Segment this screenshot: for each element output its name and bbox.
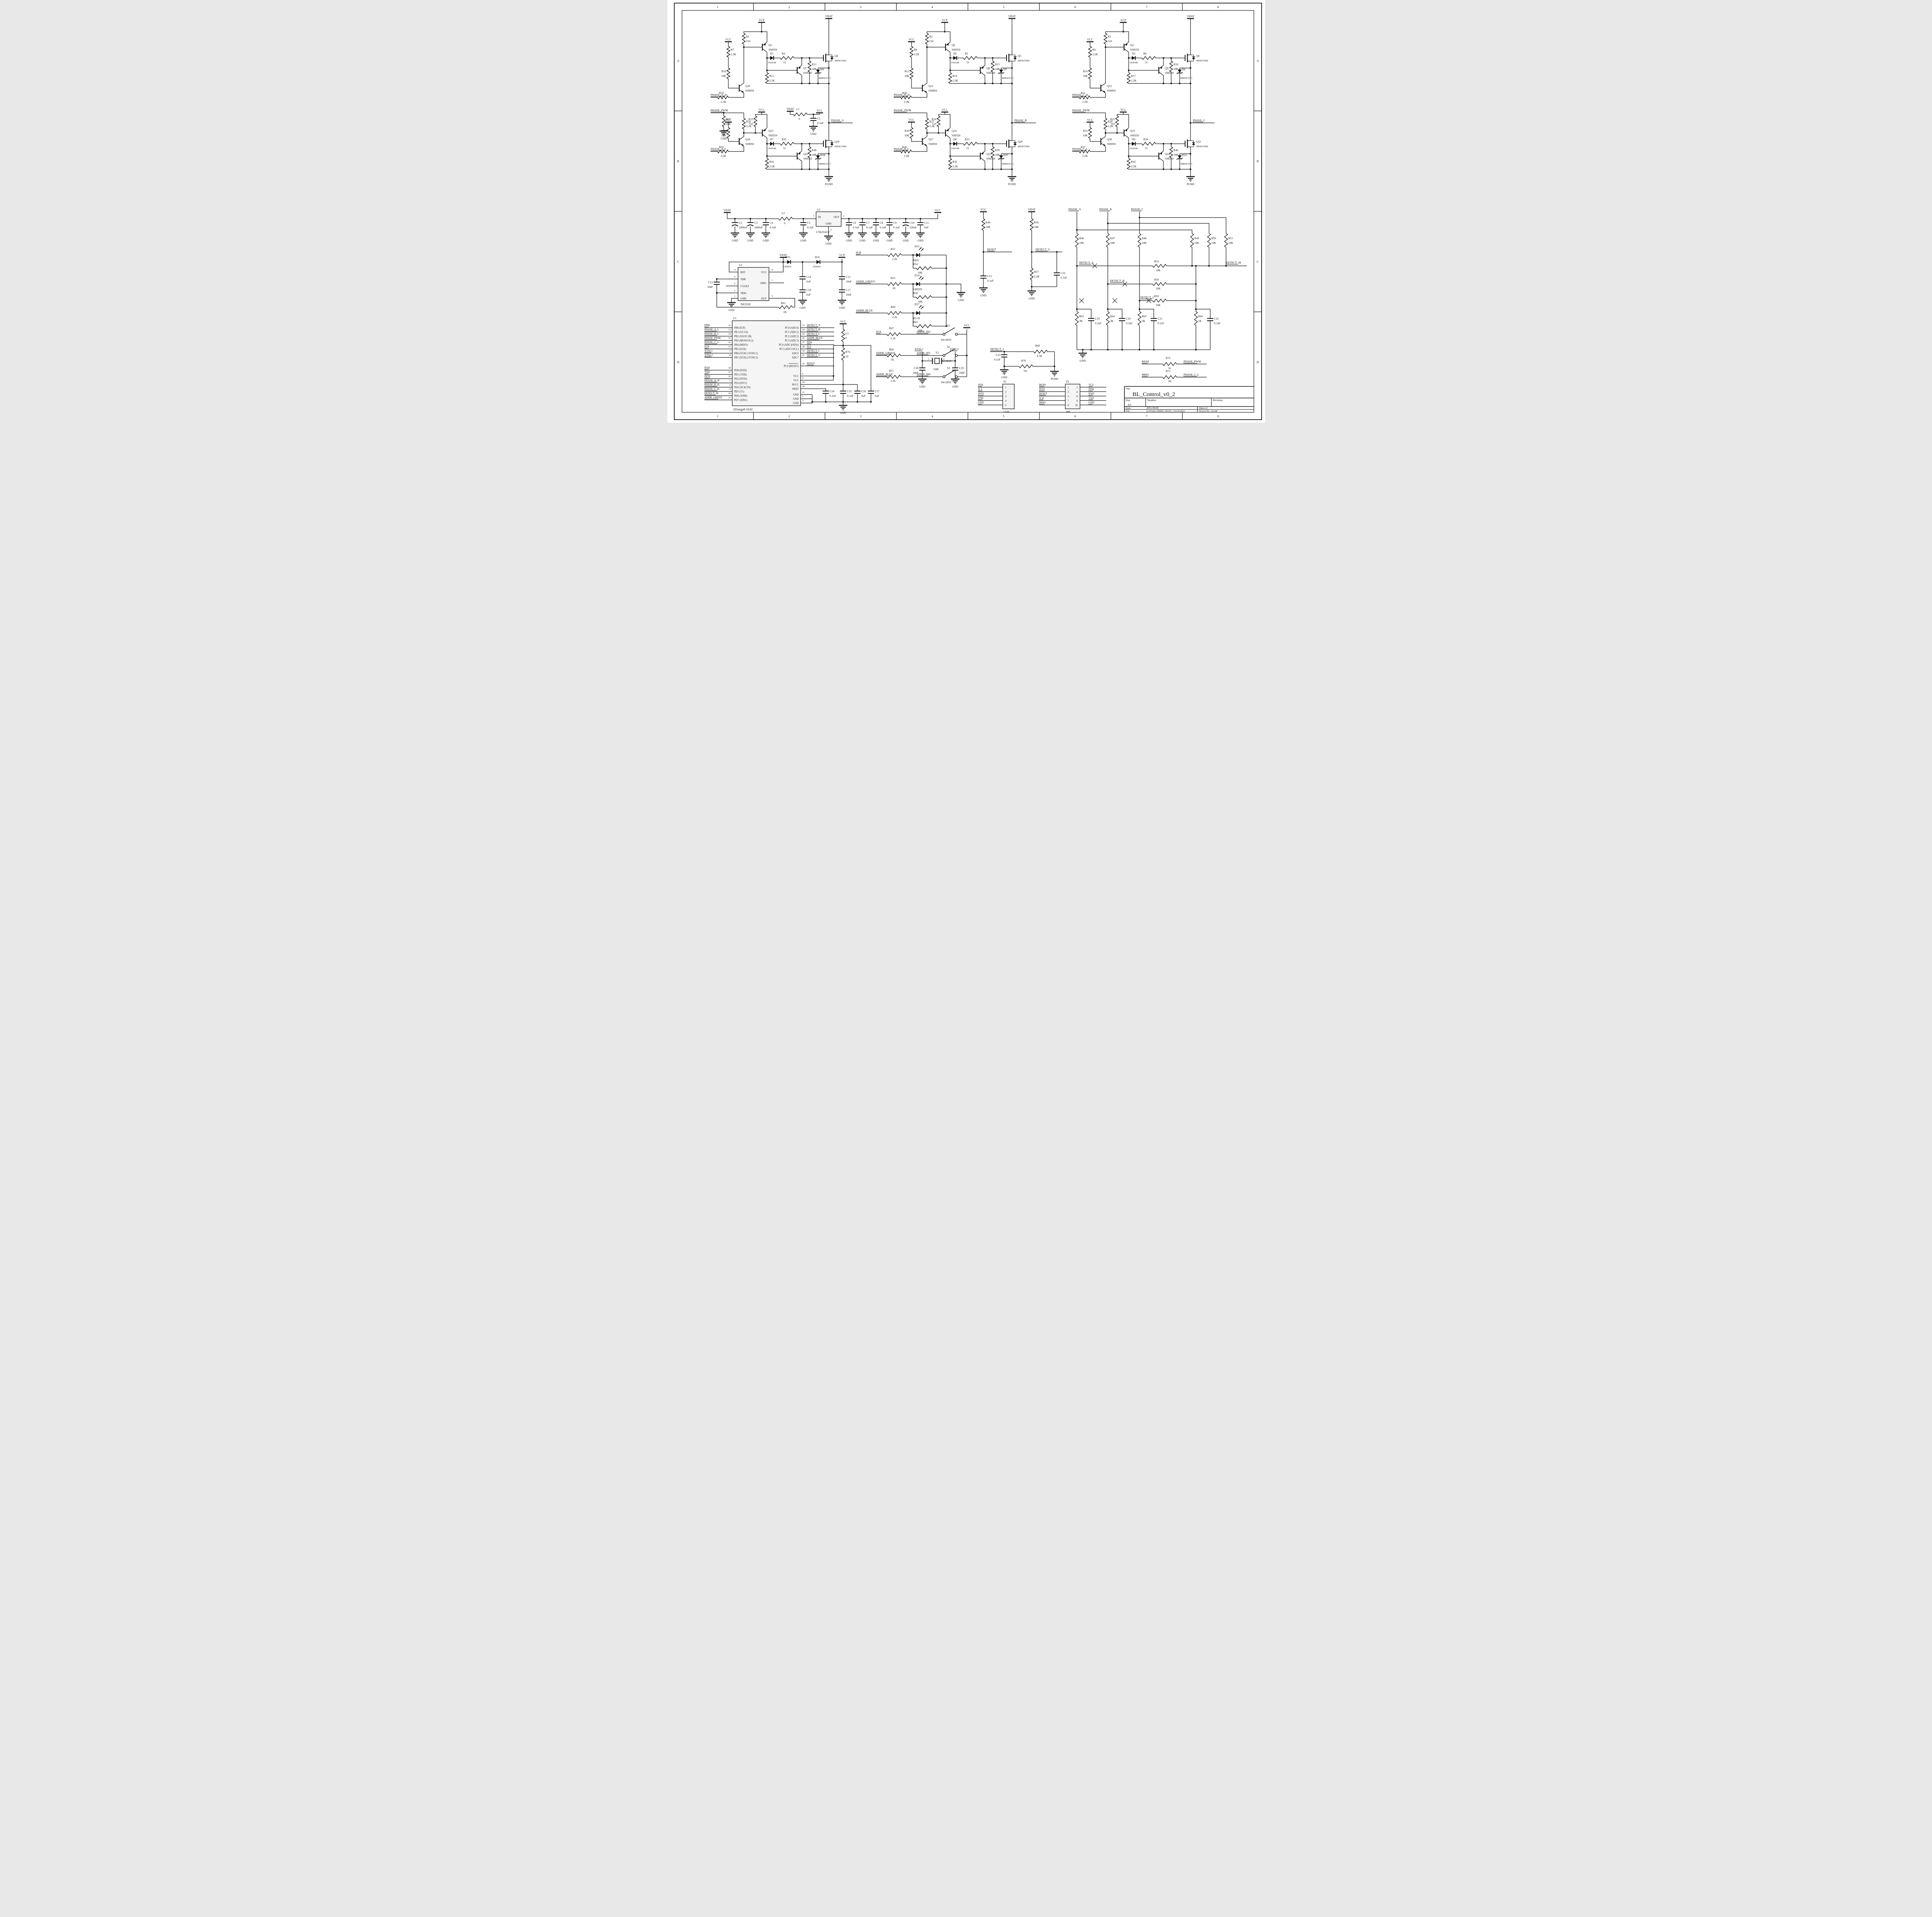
svg-text:Q8: Q8 — [986, 67, 990, 70]
svg-text:2.2K: 2.2K — [721, 100, 726, 104]
svg-text:25: 25 — [802, 333, 804, 335]
svg-text:VCP: VCP — [942, 19, 947, 22]
svg-text:VCP: VCP — [1120, 19, 1126, 22]
svg-text:2.2K: 2.2K — [731, 53, 736, 56]
svg-text:XTAL1: XTAL1 — [704, 350, 713, 352]
svg-text:L1: L1 — [796, 108, 799, 111]
svg-text:R55: R55 — [891, 277, 895, 280]
svg-text:SDA: SDA — [807, 341, 812, 344]
svg-text:SS8550: SS8550 — [1130, 48, 1139, 51]
svg-text:R7: R7 — [731, 48, 734, 51]
svg-text:A: A — [1257, 59, 1259, 63]
svg-text:2: 2 — [729, 384, 730, 386]
svg-text:VCC: VCC — [964, 324, 969, 327]
svg-text:0.1uF: 0.1uF — [1158, 322, 1164, 325]
svg-text:PB7 (XTAL2/TOSC2): PB7 (XTAL2/TOSC2) — [734, 357, 758, 359]
svg-text:CON: CON — [1003, 410, 1010, 413]
svg-text:18K: 18K — [812, 153, 817, 156]
svg-text:SCK: SCK — [704, 345, 709, 348]
svg-text:VBAT: VBAT — [1187, 15, 1194, 18]
svg-text:1: 1 — [843, 215, 844, 218]
svg-text:GREEN: GREEN — [913, 288, 922, 291]
svg-text:18K: 18K — [995, 153, 1000, 156]
svg-text:R17: R17 — [1131, 75, 1136, 78]
svg-text:C11: C11 — [924, 221, 929, 225]
svg-text:R16: R16 — [1083, 70, 1088, 73]
svg-text:GND: GND — [732, 239, 738, 242]
svg-text:1: 1 — [1068, 386, 1069, 389]
svg-text:R45: R45 — [1034, 221, 1039, 224]
svg-text:C2: C2 — [739, 221, 742, 225]
svg-text:C27: C27 — [875, 390, 879, 393]
svg-text:GND: GND — [747, 239, 753, 242]
svg-text:5m: 5m — [1024, 369, 1027, 373]
svg-text:SW-SPST: SW-SPST — [941, 360, 952, 363]
svg-text:C9: C9 — [893, 221, 897, 225]
svg-text:2.2K: 2.2K — [1092, 53, 1098, 56]
svg-text:VCC: VCC — [908, 118, 914, 122]
svg-text:DETECT_I: DETECT_I — [807, 350, 820, 352]
svg-text:VCP: VCP — [839, 253, 844, 257]
svg-text:GND: GND — [840, 412, 846, 415]
svg-text:D16: D16 — [815, 256, 820, 259]
svg-text:R54: R54 — [913, 263, 918, 266]
svg-text:7: 7 — [1146, 415, 1147, 418]
svg-text:510: 510 — [929, 40, 934, 43]
svg-text:2.2K: 2.2K — [952, 79, 958, 82]
svg-text:ADC7: ADC7 — [792, 357, 799, 359]
svg-text:GND: GND — [846, 239, 852, 242]
svg-text:1000uF: 1000uF — [739, 226, 747, 229]
title-block: TitleBL_Control_v0_2SizeNumberRevisionA3… — [1124, 386, 1254, 413]
svg-text:8: 8 — [1217, 415, 1219, 418]
svg-text:SS8050: SS8050 — [929, 89, 937, 92]
svg-text:6uF: 6uF — [806, 280, 811, 283]
svg-text:2.2K: 2.2K — [1131, 79, 1137, 82]
svg-text:DETECT_C: DETECT_C — [807, 333, 820, 335]
svg-text:R42: R42 — [952, 160, 957, 163]
svg-text:10uF: 10uF — [846, 280, 852, 283]
svg-text:GND: GND — [980, 294, 986, 297]
svg-text:DETECT_B: DETECT_B — [807, 328, 820, 331]
svg-text:2.2k: 2.2k — [891, 337, 896, 340]
svg-text:27: 27 — [802, 341, 804, 344]
svg-text:PGND: PGND — [825, 183, 833, 186]
svg-text:C3: C3 — [754, 221, 758, 225]
svg-text:16M: 16M — [933, 368, 939, 371]
svg-text:GND: GND — [886, 239, 893, 242]
svg-text:2: 2 — [1005, 391, 1007, 394]
svg-text:B: B — [1257, 160, 1259, 163]
svg-text:0.1uF: 0.1uF — [1126, 322, 1133, 325]
svg-text:4: 4 — [1005, 400, 1007, 403]
svg-text:SS8550: SS8550 — [986, 157, 995, 160]
svg-text:GND: GND — [825, 242, 832, 245]
svg-text:Q9: Q9 — [1165, 67, 1168, 70]
svg-text:D8: D8 — [953, 138, 957, 141]
svg-text:DETECT_A: DETECT_A — [807, 324, 820, 327]
svg-text:ADC6: ADC6 — [792, 352, 799, 355]
svg-text:ADDR_GREEN: ADDR_GREEN — [704, 396, 722, 399]
svg-text:ADDR_ID1: ADDR_ID1 — [917, 351, 930, 355]
svg-text:SS8550: SS8550 — [986, 71, 995, 75]
svg-text:Q13: Q13 — [769, 129, 774, 133]
svg-text:R64: R64 — [1110, 315, 1115, 318]
svg-text:SS8050: SS8050 — [745, 89, 754, 92]
svg-text:R3: R3 — [1108, 35, 1111, 38]
svg-text:GND: GND — [1029, 297, 1035, 300]
svg-text:PHASE_A: PHASE_A — [831, 119, 844, 122]
svg-text:PHASE_PWM: PHASE_PWM — [711, 109, 728, 112]
svg-text:R71: R71 — [889, 369, 894, 373]
svg-text:10K: 10K — [721, 134, 726, 137]
bridge-bottom-A: PHASE_PWMR2218KGNDR262.2KVCLR23510Q13SS8… — [711, 93, 853, 186]
svg-text:R39: R39 — [995, 149, 1000, 152]
svg-text:OUT: OUT — [833, 216, 839, 219]
svg-text:12: 12 — [728, 324, 730, 327]
svg-text:R44: R44 — [986, 221, 990, 224]
svg-text:7: 7 — [1068, 400, 1069, 403]
svg-text:IRFR3709Z: IRFR3709Z — [835, 145, 847, 148]
svg-text:VCL: VCL — [1120, 108, 1126, 112]
svg-text:R59: R59 — [1154, 295, 1159, 298]
svg-text:10K: 10K — [1083, 134, 1088, 137]
svg-text:D: D — [677, 361, 679, 364]
svg-text:510: 510 — [1108, 40, 1112, 43]
svg-text:VCL: VCL — [816, 109, 822, 112]
svg-text:PC0 (ADC0): PC0 (ADC0) — [785, 327, 799, 330]
svg-text:0.1uF: 0.1uF — [807, 226, 814, 229]
svg-text:R53: R53 — [1154, 260, 1159, 263]
svg-text:4: 4 — [1076, 391, 1078, 394]
connector-p2: P2ISPMOSI1INT03RESET5SCK7MISO92VCC4PPM6R… — [1039, 380, 1106, 413]
bridge-top-C: VCPR3510Q3SS8550D31N4148R651Q9SS8550R172… — [1072, 15, 1208, 104]
svg-text:R65: R65 — [1142, 315, 1146, 318]
svg-text:2.2K: 2.2K — [769, 79, 775, 82]
svg-text:D2: D2 — [953, 52, 957, 55]
svg-text:C5: C5 — [807, 221, 811, 225]
svg-text:Q20: Q20 — [1018, 140, 1023, 143]
svg-text:1000uF: 1000uF — [754, 226, 763, 229]
svg-text:D14: D14 — [915, 274, 920, 277]
svg-text:RST: RST — [740, 271, 746, 274]
svg-text:C23: C23 — [996, 354, 1000, 357]
svg-text:VCC: VCC — [761, 271, 767, 274]
svg-text:0.1uF: 0.1uF — [1095, 322, 1102, 325]
svg-text:R9: R9 — [1092, 48, 1096, 51]
svg-text:PD7 (AIN1): PD7 (AIN1) — [734, 399, 747, 402]
svg-text:2.2K: 2.2K — [952, 165, 958, 168]
svg-text:C16: C16 — [1061, 272, 1065, 275]
svg-text:S3: S3 — [947, 367, 950, 370]
svg-text:ADDR_ID2: ADDR_ID2 — [917, 330, 930, 333]
svg-text:3: 3 — [813, 215, 814, 218]
svg-text:TRIG: TRIG — [740, 292, 747, 295]
svg-text:0.1uF: 0.1uF — [994, 358, 1000, 361]
svg-text:D17: D17 — [915, 303, 920, 306]
svg-text:PHASE_C: PHASE_C — [1193, 119, 1205, 122]
svg-text:PHASE_C_H: PHASE_C_H — [704, 388, 719, 391]
svg-text:PHASE_B_H: PHASE_B_H — [894, 93, 910, 97]
schematic-page: 1122334455667788AABBCCDDTitleBL_Control_… — [667, 0, 1265, 423]
svg-text:23: 23 — [802, 324, 804, 327]
svg-text:C10: C10 — [910, 221, 914, 225]
svg-text:16: 16 — [728, 341, 730, 344]
svg-text:4: 4 — [802, 377, 804, 379]
svg-text:1N4148: 1N4148 — [1129, 61, 1138, 64]
svg-text:GND: GND — [1088, 401, 1094, 404]
svg-text:10K: 10K — [1142, 242, 1147, 245]
svg-text:RXD: RXD — [1088, 393, 1094, 395]
svg-text:GND: GND — [810, 133, 816, 136]
svg-text:NE555D: NE555D — [741, 303, 751, 306]
svg-text:CVOLT: CVOLT — [740, 285, 749, 288]
svg-text:510: 510 — [749, 122, 753, 126]
svg-text:U3: U3 — [817, 208, 820, 211]
svg-text:PB1 (OC1A): PB1 (OC1A) — [734, 331, 748, 334]
svg-text:R56: R56 — [1154, 278, 1159, 281]
connector-p1: P1CONSDA1SCL2INT03PPM4GND5 — [978, 380, 1014, 413]
svg-text:R5: R5 — [965, 52, 968, 55]
svg-text:PB5 (SCK): PB5 (SCK) — [734, 348, 746, 351]
svg-text:Q11: Q11 — [929, 85, 934, 88]
svg-text:PPM: PPM — [978, 397, 983, 400]
svg-text:3: 3 — [860, 415, 861, 418]
svg-text:DETECT_I: DETECT_I — [990, 347, 1004, 351]
svg-text:R68: R68 — [1035, 344, 1040, 347]
svg-text:14: 14 — [728, 333, 731, 335]
svg-text:A: A — [677, 59, 679, 63]
svg-text:C25: C25 — [847, 390, 852, 393]
svg-text:XTAL1: XTAL1 — [915, 347, 923, 351]
svg-text:Sheet of: Sheet of — [1199, 407, 1208, 410]
svg-text:1: 1 — [717, 415, 718, 418]
svg-text:R50: R50 — [1211, 237, 1216, 240]
svg-text:R18: R18 — [1173, 63, 1178, 66]
svg-text:18K: 18K — [812, 68, 817, 71]
svg-text:10: 10 — [845, 355, 849, 358]
svg-text:8: 8 — [1076, 400, 1078, 403]
bridge-bottom-B: PHASE_PWMR272.2KVCLR24510Q14SS8550D81N41… — [894, 93, 1036, 186]
svg-text:VCC: VCC — [980, 208, 986, 211]
svg-text:GND: GND — [1001, 376, 1007, 379]
svg-text:SS8050: SS8050 — [745, 143, 754, 146]
svg-text:R60: R60 — [891, 306, 895, 309]
svg-text:3: 3 — [772, 295, 773, 298]
svg-text:1: 1 — [1005, 386, 1006, 389]
svg-text:2.2K: 2.2K — [1034, 275, 1040, 278]
svg-text:Q10: Q10 — [745, 85, 750, 88]
bridge-top-B: VCPR2510Q2SS8550D21N4148R551Q8SS8550R142… — [894, 15, 1030, 104]
svg-text:24: 24 — [802, 328, 805, 331]
svg-text:1K: 1K — [891, 358, 895, 361]
svg-text:GND: GND — [799, 306, 806, 310]
svg-text:1K: 1K — [783, 311, 787, 314]
svg-text:2: 2 — [788, 5, 790, 9]
svg-text:PD5 (T1): PD5 (T1) — [734, 391, 744, 393]
svg-text:6: 6 — [1076, 395, 1078, 398]
svg-text:PHASE_B_L: PHASE_B_L — [704, 333, 719, 335]
svg-text:GND: GND — [978, 401, 984, 404]
svg-text:SDA: SDA — [978, 384, 983, 386]
svg-text:0.1uF: 0.1uF — [1214, 322, 1221, 325]
svg-text:Drawn By: racede: Drawn By: racede — [1199, 410, 1218, 413]
svg-text:C14: C14 — [806, 276, 811, 279]
svg-text:SCL: SCL — [807, 345, 812, 348]
svg-text:PC6 (RESET): PC6 (RESET) — [784, 365, 799, 368]
svg-text:6uF: 6uF — [875, 395, 879, 398]
svg-text:GND: GND — [793, 398, 799, 401]
reset-rc: VCCR4418KRESETC150.1uFGND — [979, 208, 1012, 298]
svg-text:10K: 10K — [1228, 242, 1233, 245]
svg-text:C12: C12 — [846, 276, 850, 279]
svg-text:10pF: 10pF — [959, 371, 965, 374]
svg-text:2.2K: 2.2K — [1082, 100, 1088, 104]
svg-text:18K: 18K — [986, 226, 991, 229]
svg-text:IRFR3709Z: IRFR3709Z — [1018, 60, 1030, 62]
svg-text:R46: R46 — [1079, 237, 1084, 240]
svg-text:DETECT_C: DETECT_C — [1140, 296, 1155, 299]
svg-text:PHASE_A: PHASE_A — [1068, 208, 1081, 211]
svg-text:PC2 (ADC2): PC2 (ADC2) — [785, 335, 799, 338]
svg-text:C17: C17 — [846, 289, 850, 292]
svg-text:TXD: TXD — [704, 371, 710, 374]
svg-text:GND: GND — [859, 239, 866, 242]
svg-text:1: 1 — [717, 5, 718, 9]
svg-text:13: 13 — [728, 328, 730, 331]
svg-text:GND: GND — [903, 239, 909, 242]
svg-text:R43: R43 — [1131, 160, 1136, 163]
svg-text:MISO: MISO — [1142, 373, 1149, 376]
svg-text:C18: C18 — [806, 289, 811, 292]
svg-text:Q:\Project IMRH\.\BLDC_Ctrl.Sc: Q:\Project IMRH\.\BLDC_Ctrl.SchDoc — [1146, 410, 1185, 413]
svg-text:30: 30 — [728, 367, 730, 369]
svg-text:D9: D9 — [1132, 138, 1135, 141]
svg-text:17: 17 — [728, 345, 730, 348]
svg-text:D1: D1 — [770, 52, 774, 55]
svg-text:GND: GND — [952, 385, 958, 388]
svg-text:PB2 (SS/OC1B): PB2 (SS/OC1B) — [734, 335, 752, 338]
svg-text:ATmega8-16AC: ATmega8-16AC — [733, 408, 753, 411]
svg-text:R24: R24 — [932, 118, 936, 121]
svg-text:R30: R30 — [905, 129, 909, 133]
svg-text:PC5 (ADC5/SCL): PC5 (ADC5/SCL) — [779, 348, 798, 351]
svg-text:PHASE_C_L: PHASE_C_L — [1072, 147, 1088, 151]
svg-text:D3: D3 — [1132, 52, 1135, 55]
svg-text:R70: R70 — [1021, 359, 1026, 362]
svg-text:19: 19 — [802, 350, 804, 352]
svg-text:VCC: VCC — [1087, 38, 1093, 41]
svg-text:INT0: INT0 — [1039, 388, 1045, 391]
svg-text:6: 6 — [1074, 415, 1076, 418]
svg-text:51: 51 — [783, 147, 786, 150]
svg-text:SW-SPST: SW-SPST — [941, 381, 952, 384]
svg-text:IRFR3709Z: IRFR3709Z — [1196, 145, 1208, 148]
svg-text:10K: 10K — [1156, 287, 1161, 290]
svg-text:P1: P1 — [1003, 380, 1007, 383]
svg-text:C8: C8 — [880, 221, 883, 225]
svg-text:GND: GND — [728, 309, 735, 312]
svg-text:10pF: 10pF — [913, 371, 918, 374]
svg-text:6: 6 — [802, 373, 803, 375]
svg-text:PB6 (XTAL1/TOSC1): PB6 (XTAL1/TOSC1) — [734, 352, 758, 355]
svg-text:5: 5 — [1003, 5, 1004, 9]
svg-text:C26: C26 — [861, 390, 866, 393]
svg-text:2.2K: 2.2K — [1131, 165, 1137, 168]
svg-text:PHASE_C_H: PHASE_C_H — [1072, 93, 1088, 97]
svg-text:0: 0 — [799, 117, 800, 121]
svg-text:1k: 1k — [1168, 367, 1171, 370]
svg-text:R33: R33 — [965, 138, 969, 141]
svg-text:C15: C15 — [987, 275, 992, 278]
svg-text:2: 2 — [1076, 386, 1078, 389]
svg-text:VCL: VCL — [759, 108, 764, 112]
svg-text:P2: P2 — [1066, 380, 1069, 383]
svg-text:1K: 1K — [1168, 380, 1172, 383]
svg-text:THR: THR — [740, 278, 746, 281]
svg-text:MOSI: MOSI — [1142, 360, 1149, 363]
svg-text:GND: GND — [763, 239, 769, 242]
svg-text:0.1uF: 0.1uF — [880, 226, 886, 229]
svg-text:7: 7 — [772, 279, 773, 282]
svg-text:R29: R29 — [721, 129, 726, 133]
svg-text:7: 7 — [729, 350, 730, 352]
svg-text:C29: C29 — [959, 367, 964, 370]
svg-text:6uF: 6uF — [924, 226, 929, 229]
svg-text:R67: R67 — [889, 327, 894, 330]
svg-text:D12: D12 — [1182, 154, 1187, 157]
svg-text:R2: R2 — [929, 35, 933, 38]
svg-text:Revision: Revision — [1213, 399, 1223, 402]
svg-text:IN: IN — [818, 216, 821, 219]
svg-text:6: 6 — [1074, 5, 1076, 9]
svg-text:D11: D11 — [1003, 154, 1009, 157]
svg-text:GND: GND — [919, 385, 925, 388]
svg-text:0.1uF: 0.1uF — [770, 226, 776, 229]
svg-text:SCK: SCK — [856, 251, 862, 254]
svg-text:R72: R72 — [1166, 357, 1170, 360]
svg-text:2.2K: 2.2K — [1082, 155, 1088, 158]
svg-text:4: 4 — [931, 415, 933, 418]
svg-text:GND: GND — [1080, 359, 1086, 362]
svg-text:R74: R74 — [845, 350, 850, 354]
svg-text:18K: 18K — [995, 68, 1000, 71]
svg-text:0.1uF: 0.1uF — [830, 395, 836, 398]
bridge-bottom-C: PHASE_PWMR282.2KVCLR25510Q15SS8550D91N41… — [1072, 93, 1214, 186]
svg-text:10: 10 — [728, 392, 730, 395]
svg-text:51: 51 — [1145, 61, 1148, 64]
svg-text:0.1uF: 0.1uF — [893, 226, 900, 229]
svg-text:PHASE_PWM: PHASE_PWM — [894, 109, 911, 112]
svg-text:RESET: RESET — [807, 362, 815, 365]
svg-text:Q19: Q19 — [835, 140, 840, 143]
svg-text:1: 1 — [729, 379, 730, 382]
svg-text:PD3 (INT1): PD3 (INT1) — [734, 382, 747, 385]
svg-text:6uF: 6uF — [806, 293, 811, 296]
svg-text:1N4148: 1N4148 — [768, 147, 776, 150]
svg-text:Q1: Q1 — [769, 44, 772, 47]
svg-text:VCC: VCC — [1087, 118, 1093, 122]
svg-text:B: B — [677, 160, 679, 163]
svg-text:4.7K: 4.7K — [1037, 355, 1043, 358]
svg-text:Q3: Q3 — [1130, 44, 1134, 47]
svg-text:26: 26 — [802, 337, 804, 340]
svg-text:R73: R73 — [1166, 370, 1170, 373]
svg-text:R51: R51 — [1228, 237, 1233, 240]
svg-text:10K: 10K — [1110, 242, 1115, 245]
svg-text:D6: D6 — [1182, 68, 1185, 71]
svg-text:VCC: VCC — [793, 375, 799, 378]
